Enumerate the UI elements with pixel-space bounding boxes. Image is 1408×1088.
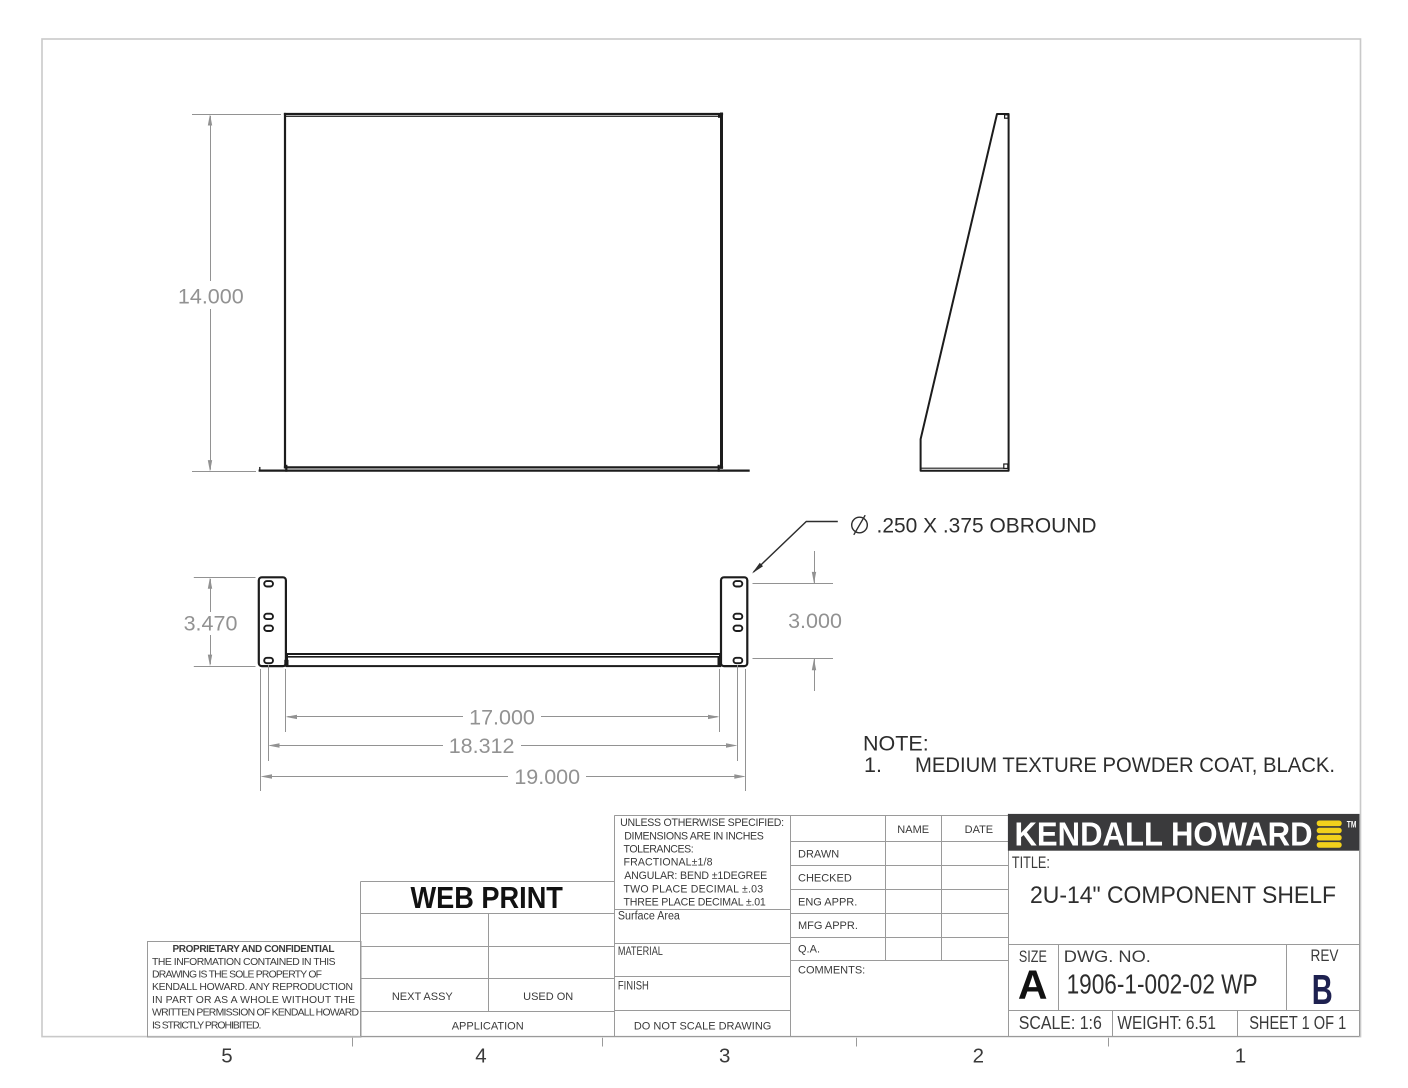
svg-text:14.000: 14.000	[178, 285, 244, 309]
svg-text:ENG APPR.: ENG APPR.	[798, 897, 857, 909]
svg-text:UNLESS OTHERWISE SPECIFIED:: UNLESS OTHERWISE SPECIFIED:	[620, 817, 784, 829]
svg-text:DRAWN: DRAWN	[798, 849, 839, 861]
svg-text:4: 4	[475, 1045, 486, 1068]
svg-text:FINISH: FINISH	[618, 981, 649, 993]
svg-text:CHECKED: CHECKED	[798, 873, 852, 885]
svg-text:2: 2	[973, 1045, 984, 1068]
svg-text:REV: REV	[1311, 946, 1340, 965]
svg-text:WRITTEN PERMISSION OF KENDALL: WRITTEN PERMISSION OF KENDALL HOWARD	[152, 1008, 359, 1019]
svg-text:TWO PLACE DECIMAL ±.03: TWO PLACE DECIMAL ±.03	[624, 884, 764, 896]
svg-text:NEXT ASSY: NEXT ASSY	[392, 991, 454, 1003]
svg-text:KENDALL HOWARD. ANY REPRODUCT: KENDALL HOWARD. ANY REPRODUCTION	[152, 982, 353, 993]
svg-text:TOLERANCES:: TOLERANCES:	[624, 844, 694, 856]
svg-text:1906-1-002-02 WP: 1906-1-002-02 WP	[1067, 969, 1258, 1000]
svg-text:MEDIUM TEXTURE POWDER COAT, BL: MEDIUM TEXTURE POWDER COAT, BLACK.	[915, 753, 1335, 777]
svg-text:B: B	[1312, 966, 1333, 1013]
svg-text:IN PART OR AS A WHOLE WITHOUT: IN PART OR AS A WHOLE WITHOUT THE	[152, 995, 355, 1006]
svg-text:SHEET 1 OF 1: SHEET 1 OF 1	[1249, 1013, 1346, 1033]
svg-text:.250 X .375 OBROUND: .250 X .375 OBROUND	[877, 514, 1097, 538]
svg-text:TM: TM	[1347, 819, 1357, 829]
svg-text:18.312: 18.312	[449, 734, 515, 758]
svg-text:TITLE:: TITLE:	[1012, 853, 1050, 872]
svg-text:IS STRICTLY PROHIBITED.: IS STRICTLY PROHIBITED.	[152, 1020, 261, 1031]
svg-text:5: 5	[221, 1045, 232, 1068]
svg-text:USED ON: USED ON	[523, 991, 573, 1003]
svg-text:APPLICATION: APPLICATION	[452, 1021, 524, 1033]
svg-text:ANGULAR: BEND ±1DEGREE: ANGULAR: BEND ±1DEGREE	[624, 870, 767, 882]
svg-text:SCALE: 1:6: SCALE: 1:6	[1019, 1013, 1102, 1033]
svg-text:KENDALL HOWARD: KENDALL HOWARD	[1015, 816, 1313, 853]
svg-text:THE INFORMATION CONTAINED IN T: THE INFORMATION CONTAINED IN THIS	[152, 957, 336, 968]
svg-text:1.: 1.	[864, 753, 882, 777]
svg-text:Q.A.: Q.A.	[798, 944, 820, 956]
svg-text:NAME: NAME	[897, 824, 929, 836]
svg-text:MFG APPR.: MFG APPR.	[798, 920, 858, 932]
svg-text:COMMENTS:: COMMENTS:	[798, 965, 865, 977]
svg-text:A: A	[1018, 962, 1048, 1008]
svg-text:PROPRIETARY AND CONFIDENTIAL: PROPRIETARY AND CONFIDENTIAL	[173, 944, 335, 955]
svg-text:MATERIAL: MATERIAL	[618, 946, 663, 958]
svg-text:DIMENSIONS ARE IN INCHES: DIMENSIONS ARE IN INCHES	[624, 831, 764, 843]
svg-text:FRACTIONAL±1/8: FRACTIONAL±1/8	[624, 856, 713, 868]
svg-text:DRAWING IS THE SOLE PROPERTY O: DRAWING IS THE SOLE PROPERTY OF	[152, 970, 322, 981]
svg-text:2U-14" COMPONENT SHELF: 2U-14" COMPONENT SHELF	[1030, 882, 1336, 909]
svg-text:THREE PLACE DECIMAL ±.01: THREE PLACE DECIMAL ±.01	[624, 896, 766, 908]
svg-text:3.470: 3.470	[184, 612, 238, 636]
svg-text:17.000: 17.000	[469, 705, 535, 729]
svg-text:DWG. NO.: DWG. NO.	[1064, 947, 1151, 966]
svg-text:3: 3	[719, 1045, 730, 1068]
svg-text:DO NOT SCALE DRAWING: DO NOT SCALE DRAWING	[634, 1021, 772, 1033]
svg-text:1: 1	[1235, 1045, 1246, 1068]
svg-text:WEIGHT: 6.51: WEIGHT: 6.51	[1117, 1013, 1216, 1033]
svg-text:3.000: 3.000	[788, 609, 842, 633]
svg-text:19.000: 19.000	[514, 765, 580, 789]
svg-text:DATE: DATE	[965, 824, 994, 836]
svg-text:WEB PRINT: WEB PRINT	[411, 880, 563, 915]
svg-text:Surface Area: Surface Area	[618, 910, 681, 922]
